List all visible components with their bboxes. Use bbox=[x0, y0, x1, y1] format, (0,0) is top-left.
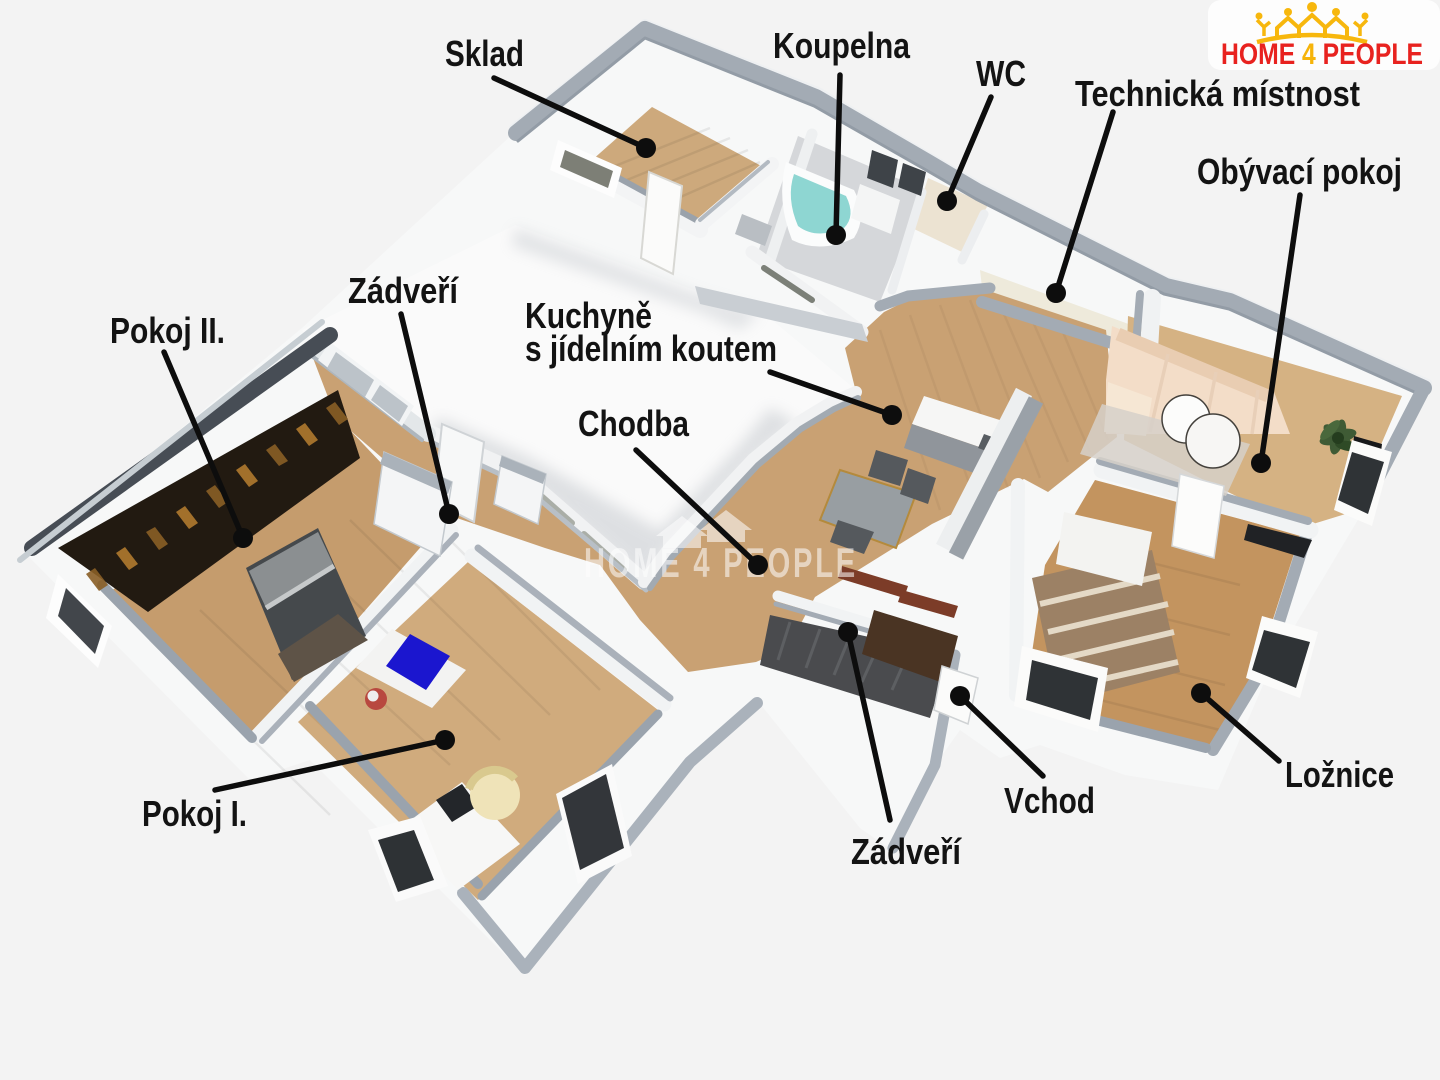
svg-text:HOME 4 PEOPLE: HOME 4 PEOPLE bbox=[584, 539, 858, 586]
svg-text:HOME 4 PEOPLE: HOME 4 PEOPLE bbox=[1221, 38, 1423, 71]
svg-text:Pokoj I.: Pokoj I. bbox=[142, 793, 247, 834]
svg-text:WC: WC bbox=[976, 53, 1026, 94]
svg-text:Technická místnost: Technická místnost bbox=[1075, 73, 1360, 114]
svg-text:Chodba: Chodba bbox=[578, 403, 690, 444]
svg-text:Sklad: Sklad bbox=[445, 33, 524, 74]
svg-text:s jídelním koutem: s jídelním koutem bbox=[525, 328, 777, 369]
svg-text:Koupelna: Koupelna bbox=[773, 25, 911, 66]
svg-text:Ložnice: Ložnice bbox=[1285, 754, 1394, 795]
svg-text:Pokoj II.: Pokoj II. bbox=[110, 310, 225, 351]
svg-text:Vchod: Vchod bbox=[1004, 780, 1095, 821]
svg-text:Obývací pokoj: Obývací pokoj bbox=[1197, 151, 1402, 192]
svg-text:Zádveří: Zádveří bbox=[851, 831, 962, 872]
svg-text:Zádveří: Zádveří bbox=[348, 270, 459, 311]
